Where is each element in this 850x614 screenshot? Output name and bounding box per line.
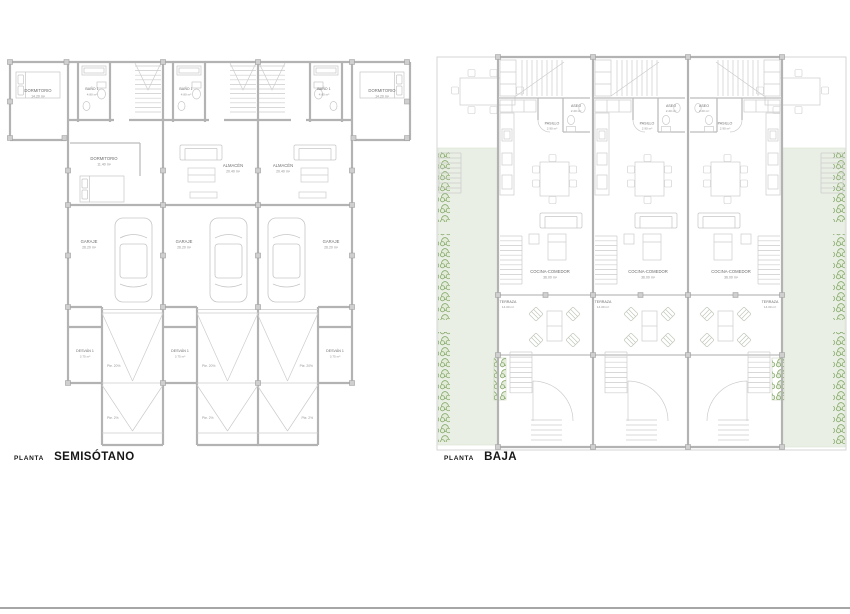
label-dormitorio-wing-left: DORMITORIO	[24, 88, 52, 93]
label-terraza-u3: TERRAZA	[762, 300, 779, 304]
dormitorio-interior	[70, 143, 140, 202]
label-pasillo-u1: PASILLO	[545, 122, 560, 126]
svg-text:2.20 m²: 2.20 m²	[666, 109, 677, 113]
svg-text:4.80 m²: 4.80 m²	[319, 93, 330, 97]
svg-text:2.90 m²: 2.90 m²	[720, 126, 731, 130]
svg-text:14.00 m²: 14.00 m²	[597, 305, 609, 309]
label-bano-u3: BAÑO 1	[317, 86, 330, 91]
label-desvan-u1: DESVÁN 1	[76, 349, 94, 353]
svg-text:26.20 m²: 26.20 m²	[82, 246, 97, 250]
label-almacen-u2: ALMACÉN	[223, 163, 243, 168]
svg-text:14.00 m²: 14.00 m²	[764, 305, 776, 309]
label-ramp-20-u2: Pte. 20%	[202, 364, 215, 368]
garden-left	[438, 148, 498, 445]
label-aseo-u3: ASEO	[699, 104, 709, 108]
title-name-baja: BAJA	[484, 451, 517, 463]
baja-unit-3	[690, 60, 782, 440]
label-cocina-u3: COCINA-COMEDOR	[711, 269, 751, 274]
svg-text:3.75 m²: 3.75 m²	[175, 355, 186, 359]
title-semisotano: PLANTA SEMISÓTANO	[14, 451, 135, 463]
baja-unit-1	[498, 60, 590, 440]
label-pasillo-u3: PASILLO	[718, 122, 733, 126]
label-terraza-u2: TERRAZA	[595, 300, 612, 304]
floor-plan-sheet: DORMITORIO 14.20 m² DORMITORIO 14.20 m² …	[0, 0, 850, 614]
garden-right	[782, 148, 845, 447]
svg-text:36.00 m²: 36.00 m²	[641, 276, 656, 280]
sheet-bottom-rule	[0, 607, 850, 609]
label-ramp-20-u3: Pte. 20%	[300, 364, 313, 368]
label-almacen-u3: ALMACÉN	[273, 163, 293, 168]
label-cocina-u2: COCINA-COMEDOR	[628, 269, 668, 274]
svg-text:14.20 m²: 14.20 m²	[375, 95, 390, 99]
label-aseo-u1: ASEO	[571, 104, 581, 108]
title-prefix-baja: PLANTA	[444, 455, 474, 462]
svg-text:4.80 m²: 4.80 m²	[87, 93, 98, 97]
svg-text:2.20 m²: 2.20 m²	[571, 109, 582, 113]
semisotano-unit-2	[163, 62, 258, 445]
label-cocina-u1: COCINA-COMEDOR	[530, 269, 570, 274]
label-desvan-u2: DESVÁN 1	[171, 349, 189, 353]
svg-text:2.90 m²: 2.90 m²	[642, 126, 653, 130]
svg-text:36.00 m²: 36.00 m²	[543, 276, 558, 280]
label-ramp-2-u3: Pte. 2%	[301, 416, 313, 420]
svg-text:2.90 m²: 2.90 m²	[547, 126, 558, 130]
label-garaje-u2: GARAJE	[176, 239, 193, 244]
semisotano-unit-1	[68, 62, 163, 445]
svg-text:4.80 m²: 4.80 m²	[181, 93, 192, 97]
label-aseo-u2: ASEO	[666, 104, 676, 108]
svg-text:26.20 m²: 26.20 m²	[324, 246, 339, 250]
plan-baja-drawing: ASEO 2.20 m² ASEO 2.20 m² ASEO 2.20 m² P…	[428, 50, 850, 455]
label-dormitorio-wing-right: DORMITORIO	[368, 88, 396, 93]
plan-semisotano-drawing: DORMITORIO 14.20 m² DORMITORIO 14.20 m² …	[0, 50, 430, 450]
label-ramp-2-u2: Pte. 2%	[202, 416, 214, 420]
label-garaje-u3: GARAJE	[323, 239, 340, 244]
label-garaje-u1: GARAJE	[81, 239, 98, 244]
label-bano-u1: BAÑO 1	[85, 86, 98, 91]
svg-text:14.20 m²: 14.20 m²	[31, 95, 46, 99]
title-baja: PLANTA BAJA	[444, 451, 517, 463]
label-dormitorio-interior: DORMITORIO	[90, 156, 118, 161]
label-desvan-u3: DESVÁN 1	[326, 349, 344, 353]
entry-planters	[494, 358, 784, 400]
svg-text:2.20 m²: 2.20 m²	[699, 109, 710, 113]
pillars	[496, 55, 785, 450]
svg-text:26.20 m²: 26.20 m²	[177, 246, 192, 250]
svg-text:14.00 m²: 14.00 m²	[502, 305, 514, 309]
label-terraza-u1: TERRAZA	[500, 300, 517, 304]
svg-text:11.40 m²: 11.40 m²	[97, 163, 111, 167]
baja-walls	[498, 57, 782, 447]
title-name-semisotano: SEMISÓTANO	[54, 451, 134, 463]
svg-text:20.40 m²: 20.40 m²	[226, 170, 241, 174]
svg-text:36.00 m²: 36.00 m²	[724, 276, 739, 280]
svg-text:3.75 m²: 3.75 m²	[330, 355, 341, 359]
svg-text:3.75 m²: 3.75 m²	[80, 355, 91, 359]
baja-labels: ASEO 2.20 m² ASEO 2.20 m² ASEO 2.20 m² P…	[500, 104, 779, 309]
semisotano-unit-3	[257, 62, 352, 445]
svg-text:20.40 m²: 20.40 m²	[276, 170, 291, 174]
label-ramp-2-u1: Pte. 2%	[107, 416, 119, 420]
title-prefix-semisotano: PLANTA	[14, 455, 44, 462]
baja-unit-2	[593, 60, 685, 440]
label-pasillo-u2: PASILLO	[640, 122, 655, 126]
label-bano-u2: BAÑO 1	[179, 86, 192, 91]
almacen-furniture-u2	[180, 145, 222, 198]
label-ramp-20-u1: Pte. 20%	[107, 364, 120, 368]
almacen-furniture-u3	[294, 145, 336, 198]
